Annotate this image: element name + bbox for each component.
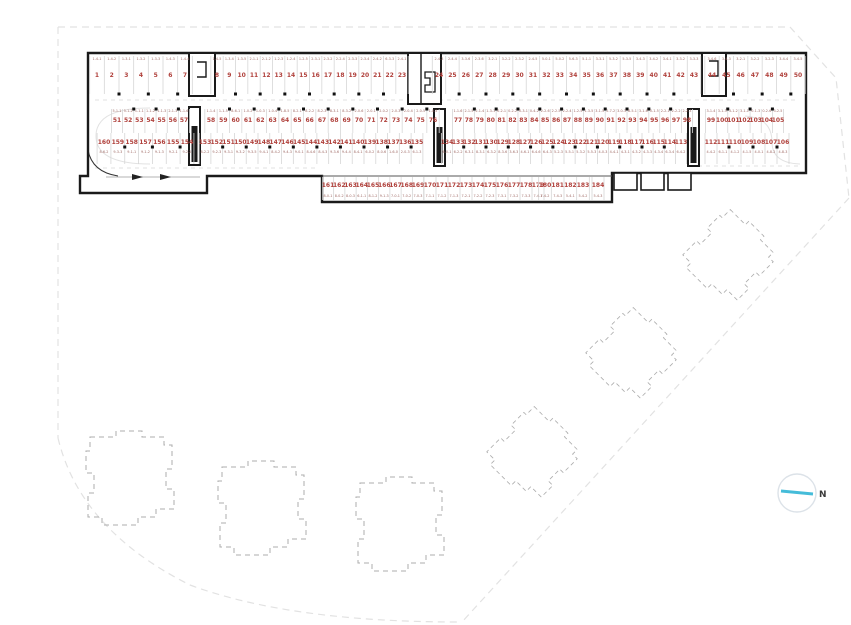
stall-number: 8 bbox=[215, 72, 219, 79]
stall-number: 76 bbox=[429, 117, 437, 124]
dashed-footprint bbox=[580, 302, 686, 408]
unit-code: 1-1-4 bbox=[207, 109, 216, 113]
unit-code: 6-1-1 bbox=[357, 194, 366, 198]
unit-code: 3-4-2 bbox=[649, 57, 658, 61]
unit-code: 8-6-2 bbox=[100, 150, 109, 154]
stall-number: 16 bbox=[311, 72, 319, 79]
unit-code: 2-2-3 bbox=[683, 109, 692, 113]
unit-code: 2-1-3 bbox=[168, 109, 177, 113]
unit-code: 7-0-2 bbox=[402, 194, 411, 198]
stall-number: 94 bbox=[639, 117, 647, 124]
unit-code: 1-0-3 bbox=[256, 109, 265, 113]
stall-number: 96 bbox=[661, 117, 669, 124]
stall-number: 159 bbox=[112, 139, 125, 146]
unit-code: 9-1-3 bbox=[380, 194, 389, 198]
unit-code: 8-2-2 bbox=[305, 109, 314, 113]
unit-code: 2-2-4 bbox=[563, 109, 572, 113]
unit-code: 6-1-3 bbox=[413, 150, 422, 154]
stall-number: 39 bbox=[636, 72, 644, 79]
unit-code: 5-5-3 bbox=[587, 150, 596, 154]
stall-number: 18 bbox=[336, 72, 344, 79]
stall-number: 85 bbox=[541, 117, 549, 124]
unit-code: 6-3-1 bbox=[465, 150, 474, 154]
stall-number: 20 bbox=[361, 72, 369, 79]
unit-code: 3-1-4 bbox=[707, 109, 716, 113]
stall-number: 56 bbox=[169, 117, 177, 124]
unit-code: 2-3-1 bbox=[311, 57, 320, 61]
stall-number: 160 bbox=[98, 139, 111, 146]
stall-number: 17 bbox=[324, 72, 332, 79]
stall-number: 65 bbox=[293, 117, 301, 124]
unit-code: 2-1-5 bbox=[464, 109, 473, 113]
unit-code: 3-4-4 bbox=[779, 57, 788, 61]
unit-code: 3-3-1 bbox=[596, 57, 605, 61]
unit-code: 5-1-1 bbox=[582, 57, 591, 61]
unit-code: 3-3-2 bbox=[676, 57, 685, 61]
unit-code: 1-1-5 bbox=[219, 109, 228, 113]
unit-code: 1-3-5 bbox=[237, 57, 246, 61]
column-dot bbox=[176, 93, 179, 96]
unit-code: 2-4-3 bbox=[435, 57, 444, 61]
stall-number: 23 bbox=[398, 72, 406, 79]
unit-code: 8-2-3 bbox=[318, 109, 327, 113]
unit-code: 4-6-1 bbox=[521, 150, 530, 154]
stall-number: 74 bbox=[404, 117, 412, 124]
unit-code: 8-1-2 bbox=[369, 194, 378, 198]
unit-code: 2-4-2 bbox=[373, 57, 382, 61]
unit-code: 1-1-3 bbox=[157, 109, 166, 113]
column-dot bbox=[283, 93, 286, 96]
stall-number: 48 bbox=[765, 72, 773, 79]
unit-code: 1-4-3 bbox=[166, 57, 175, 61]
column-dot bbox=[565, 93, 568, 96]
stall-number: 137 bbox=[387, 139, 400, 146]
unit-code: 3-1-2 bbox=[729, 109, 738, 113]
stall-number: 177 bbox=[508, 182, 521, 189]
unit-code: 1-4-5 bbox=[213, 57, 222, 61]
stall-number: 61 bbox=[244, 117, 252, 124]
unit-code: 0-3-1 bbox=[519, 109, 528, 113]
unit-code: 2-3-4 bbox=[361, 57, 370, 61]
stall-number: 88 bbox=[574, 117, 582, 124]
stall-number: 32 bbox=[542, 72, 550, 79]
stall-number: 150 bbox=[234, 139, 247, 146]
stall-number: 90 bbox=[596, 117, 604, 124]
stall-number: 79 bbox=[476, 117, 484, 124]
stall-number: 110 bbox=[729, 139, 742, 146]
unit-code: 1-1-6 bbox=[180, 109, 189, 113]
stall-number: 62 bbox=[256, 117, 264, 124]
unit-code: 8-3-1 bbox=[476, 150, 485, 154]
dashed-footprint bbox=[481, 401, 587, 507]
unit-code: 6-3-3 bbox=[385, 57, 394, 61]
stall-number: 170 bbox=[424, 182, 437, 189]
unit-code: 7-0-3 bbox=[414, 194, 423, 198]
unit-code: 5-2-3 bbox=[554, 150, 563, 154]
stall-number: 58 bbox=[207, 117, 215, 124]
unit-code: 1-2-4 bbox=[287, 57, 296, 61]
unit-code: 3-3-6 bbox=[461, 57, 470, 61]
unit-code: 7-3-3 bbox=[522, 194, 531, 198]
stall-number: 19 bbox=[348, 72, 356, 79]
unit-code: 4-4-1 bbox=[610, 150, 619, 154]
stall-number: 64 bbox=[281, 117, 289, 124]
stall-number: 49 bbox=[779, 72, 787, 79]
stall-number: 46 bbox=[736, 72, 744, 79]
unit-code: 9-3-2 bbox=[236, 150, 245, 154]
unit-code: 5-6-3 bbox=[569, 57, 578, 61]
stall-number: 107 bbox=[765, 139, 778, 146]
column-dot bbox=[538, 93, 541, 96]
unit-code: 2-2-2 bbox=[672, 109, 681, 113]
stall-number: 91 bbox=[606, 117, 614, 124]
unit-code: 1-3-1 bbox=[486, 109, 495, 113]
unit-code: 2-0-6 bbox=[355, 109, 364, 113]
stall-number: 36 bbox=[596, 72, 604, 79]
stall-number: 21 bbox=[373, 72, 381, 79]
stall-number: 81 bbox=[497, 117, 505, 124]
stall-number: 30 bbox=[515, 72, 523, 79]
unit-code: 8-6-1 bbox=[231, 109, 240, 113]
site-plan-canvas: 11-4-121-4-231-3-141-3-251-3-361-4-371-4… bbox=[0, 0, 851, 625]
unit-code: 0-2-1 bbox=[497, 109, 506, 113]
unit-code: 9-2-3 bbox=[212, 150, 221, 154]
unit-code: 8-2-2 bbox=[201, 150, 210, 154]
stall-number: 156 bbox=[153, 139, 166, 146]
column-dot bbox=[308, 93, 311, 96]
column-dot bbox=[458, 93, 461, 96]
unit-code: 5-3-2 bbox=[576, 150, 585, 154]
unit-code: 1-8-5 bbox=[281, 109, 290, 113]
unit-code: 5-3-5 bbox=[622, 57, 631, 61]
unit-code: 8-0-6 bbox=[377, 150, 386, 154]
stall-number: 112 bbox=[705, 139, 718, 146]
column-dot bbox=[761, 93, 764, 96]
column-dot bbox=[118, 93, 121, 96]
stall-number: 182 bbox=[564, 182, 577, 189]
unit-code: 7-2-2 bbox=[474, 194, 483, 198]
unit-code: 2-3-3 bbox=[348, 57, 357, 61]
unit-code: 9-4-4 bbox=[342, 150, 351, 154]
stall-number: 174 bbox=[472, 182, 485, 189]
stall-number: 9 bbox=[227, 72, 231, 79]
stall-number: 29 bbox=[502, 72, 510, 79]
unit-code: 6-0-1 bbox=[443, 150, 452, 154]
unit-code: 1-4-1 bbox=[93, 57, 102, 61]
stall-number: 60 bbox=[231, 117, 239, 124]
stall-number: 24 bbox=[435, 72, 443, 79]
unit-code: 7-1-3 bbox=[450, 194, 459, 198]
column-dot bbox=[511, 93, 514, 96]
unit-code: 1-2-5 bbox=[299, 57, 308, 61]
stall-number: 175 bbox=[484, 182, 497, 189]
stall-number: 84 bbox=[530, 117, 538, 124]
stall-number: 83 bbox=[519, 117, 527, 124]
unit-code: 2-2-5 bbox=[552, 109, 561, 113]
stall-number: 178 bbox=[520, 182, 533, 189]
unit-code: 8-3-6 bbox=[498, 150, 507, 154]
unit-code: 8-4-3 bbox=[318, 150, 327, 154]
unit-code: 2-2-6 bbox=[541, 109, 550, 113]
stall-number: 99 bbox=[707, 117, 715, 124]
unit-code: 2-1-1 bbox=[250, 57, 259, 61]
unit-code: 7-1-1 bbox=[426, 194, 435, 198]
unit-code: 2-4-4 bbox=[448, 57, 457, 61]
stall-number: 152 bbox=[211, 139, 224, 146]
stall-number: 52 bbox=[124, 117, 132, 124]
unit-code: 6-3-4 bbox=[665, 150, 674, 154]
column-dot bbox=[672, 93, 675, 96]
stall-number: 87 bbox=[563, 117, 571, 124]
unit-code: 6-4-3 bbox=[543, 150, 552, 154]
unit-code: 5-0-1 bbox=[542, 57, 551, 61]
unit-code: 2-3-6 bbox=[475, 57, 484, 61]
unit-code: 3-1-1 bbox=[740, 109, 749, 113]
unit-code: 7-2-3 bbox=[486, 194, 495, 198]
unit-code: 5-4-3 bbox=[594, 194, 603, 198]
unit-code: 3-4-3 bbox=[636, 57, 645, 61]
stall-number: 5 bbox=[154, 72, 158, 79]
unit-code: 4-3-4 bbox=[654, 150, 663, 154]
unit-code: 6-2-2 bbox=[454, 150, 463, 154]
unit-code: 7-3-2 bbox=[510, 194, 519, 198]
stall-number: 26 bbox=[462, 72, 470, 79]
unit-code: 1-1-2 bbox=[146, 109, 155, 113]
unit-code: 9-3-6 bbox=[330, 150, 339, 154]
dashed-footprint bbox=[356, 477, 444, 571]
unit-code: 9-1-3 bbox=[155, 150, 164, 154]
stall-number: 180 bbox=[539, 182, 552, 189]
column-dot bbox=[234, 93, 237, 96]
stall-number: 66 bbox=[305, 117, 313, 124]
stall-number: 63 bbox=[268, 117, 276, 124]
unit-code: 2-7-2 bbox=[606, 109, 615, 113]
unit-code: 6-1-1 bbox=[719, 150, 728, 154]
unit-code: 2-2-4 bbox=[336, 57, 345, 61]
stall-number: 113 bbox=[675, 139, 688, 146]
unit-code: 5-3-2 bbox=[609, 57, 618, 61]
unit-code: 8-0-1 bbox=[324, 194, 333, 198]
stall-number: 4 bbox=[139, 72, 143, 79]
unit-code: 2-2-1 bbox=[661, 109, 670, 113]
unit-code: 8-0-3 bbox=[346, 194, 355, 198]
unit-code: 3-0-3 bbox=[617, 109, 626, 113]
unit-code: 9-1-1 bbox=[127, 150, 136, 154]
stall-number: 153 bbox=[199, 139, 212, 146]
stall-number: 33 bbox=[556, 72, 564, 79]
unit-code: 6-0-2 bbox=[365, 150, 374, 154]
stall-number: 3 bbox=[124, 72, 128, 79]
unit-code: 7-3-1 bbox=[498, 194, 507, 198]
unit-code: 3-3-3 bbox=[690, 57, 699, 61]
stall-number: 6 bbox=[168, 72, 172, 79]
unit-code: 9-4-3 bbox=[283, 150, 292, 154]
unit-code: 0-4-2 bbox=[530, 109, 539, 113]
unit-code: 3-2-5 bbox=[774, 109, 783, 113]
stall-number: 34 bbox=[569, 72, 577, 79]
unit-code: 2-0-4 bbox=[404, 109, 413, 113]
unit-code: 1-0-4 bbox=[268, 109, 277, 113]
unit-code: 5-1-2 bbox=[124, 109, 133, 113]
stall-number: 80 bbox=[487, 117, 495, 124]
unit-code: 1-4-2 bbox=[107, 57, 116, 61]
north-label: N bbox=[819, 490, 827, 500]
unit-code: 2-4-5 bbox=[528, 57, 537, 61]
unit-code: 0-2-2 bbox=[508, 109, 517, 113]
unit-code: 6-4-2 bbox=[677, 150, 686, 154]
stall-number: 145 bbox=[293, 139, 306, 146]
unit-code: 2-0-3 bbox=[392, 109, 401, 113]
unit-code: 4-3-2 bbox=[632, 150, 641, 154]
unit-code: 4-0-3 bbox=[599, 150, 608, 154]
unit-code: 3-2-3 bbox=[765, 57, 774, 61]
unit-code: 3-6-3 bbox=[509, 150, 518, 154]
stall-number: 7 bbox=[183, 72, 187, 79]
stall-number: 71 bbox=[367, 117, 375, 124]
stall-number: 42 bbox=[676, 72, 684, 79]
unit-code: 7-4-3 bbox=[553, 194, 562, 198]
unit-code: 8-4-1 bbox=[354, 150, 363, 154]
unit-code: 3-2-2 bbox=[751, 57, 760, 61]
site-plan-page: 11-4-121-4-231-3-141-3-251-3-361-4-371-4… bbox=[0, 0, 851, 625]
unit-code: 6-4-6 bbox=[532, 150, 541, 154]
unit-code: 5-4-2 bbox=[579, 194, 588, 198]
unit-code: 2-4-1 bbox=[398, 57, 407, 61]
stall-number: 69 bbox=[342, 117, 350, 124]
stall-number: 95 bbox=[650, 117, 658, 124]
stall-number: 12 bbox=[262, 72, 270, 79]
stall-number: 144 bbox=[305, 139, 318, 146]
stall-number: 31 bbox=[529, 72, 537, 79]
unit-code: 3-1-6 bbox=[639, 109, 648, 113]
column-dot bbox=[259, 93, 262, 96]
unit-code: 8-2-1 bbox=[293, 109, 302, 113]
stall-number: 41 bbox=[663, 72, 671, 79]
stall-number: 10 bbox=[237, 72, 245, 79]
stall-number: 45 bbox=[722, 72, 730, 79]
unit-code: 3-4-6 bbox=[708, 57, 717, 61]
stall-number: 184 bbox=[592, 182, 605, 189]
column-dot bbox=[357, 93, 360, 96]
stall-number: 27 bbox=[475, 72, 483, 79]
stall-number: 47 bbox=[751, 72, 759, 79]
stall-number: 75 bbox=[416, 117, 424, 124]
stall-number: 148 bbox=[258, 139, 271, 146]
stall-number: 51 bbox=[113, 117, 121, 124]
stall-number: 149 bbox=[246, 139, 259, 146]
stall-number: 158 bbox=[125, 139, 138, 146]
stall-number: 78 bbox=[465, 117, 473, 124]
unit-code: 1-3-3 bbox=[151, 57, 160, 61]
stall-number: 97 bbox=[672, 117, 680, 124]
unit-code: 7-1-2 bbox=[438, 194, 447, 198]
stall-number: 172 bbox=[448, 182, 461, 189]
unit-code: 8-3-2 bbox=[342, 109, 351, 113]
stall-number: 57 bbox=[180, 117, 188, 124]
stall-number: 141 bbox=[340, 139, 353, 146]
unit-code: 8-0-2 bbox=[335, 194, 344, 198]
column-dot bbox=[333, 93, 336, 96]
unit-code: 8-4-2 bbox=[271, 150, 280, 154]
column-dot bbox=[732, 93, 735, 96]
unit-code: 7-2-1 bbox=[462, 194, 471, 198]
stall-number: 38 bbox=[623, 72, 631, 79]
north-compass: N bbox=[778, 474, 827, 512]
stall-number: 181 bbox=[551, 182, 564, 189]
unit-code: 4-4-2 bbox=[707, 150, 716, 154]
stall-number: 169 bbox=[412, 182, 425, 189]
stall-number: 28 bbox=[489, 72, 497, 79]
dashed-footprint bbox=[218, 461, 306, 555]
stall-number: 173 bbox=[460, 182, 473, 189]
unit-code: 1-1-1 bbox=[135, 109, 144, 113]
unit-code: 9-2-2 bbox=[183, 150, 192, 154]
unit-code: 1-3-4 bbox=[225, 57, 234, 61]
stall-number: 55 bbox=[157, 117, 165, 124]
stall-number: 11 bbox=[250, 72, 258, 79]
stall-number: 15 bbox=[299, 72, 307, 79]
stall-number: 13 bbox=[274, 72, 282, 79]
unit-code: 9-3-1 bbox=[224, 150, 233, 154]
unit-code: 3-1-5 bbox=[595, 109, 604, 113]
stall-number: 176 bbox=[496, 182, 509, 189]
stall-number: 50 bbox=[794, 72, 802, 79]
stall-number: 105 bbox=[772, 117, 785, 124]
stall-number: 98 bbox=[683, 117, 691, 124]
stall-number: 35 bbox=[582, 72, 590, 79]
column-dot bbox=[619, 93, 622, 96]
unit-code: 3-4-1 bbox=[663, 57, 672, 61]
stall-number: 68 bbox=[330, 117, 338, 124]
unit-code: 3-2-1 bbox=[488, 57, 497, 61]
column-dot bbox=[484, 93, 487, 96]
unit-code: 1-6-0 bbox=[389, 150, 398, 154]
unit-code: 3-2-2 bbox=[502, 57, 511, 61]
stall-number: 73 bbox=[392, 117, 400, 124]
unit-code: 2-0-1 bbox=[367, 109, 376, 113]
stall-number: 25 bbox=[448, 72, 456, 79]
unit-code: 1-0-5 bbox=[429, 109, 438, 113]
unit-code: 4-3-3 bbox=[643, 150, 652, 154]
column-dot bbox=[646, 93, 649, 96]
stall-number: 44 bbox=[708, 72, 716, 79]
unit-code: 0-1-5 bbox=[650, 109, 659, 113]
unit-code: 4-8-3 bbox=[779, 150, 788, 154]
stall-number: 108 bbox=[753, 139, 766, 146]
dashed-footprint bbox=[86, 431, 174, 525]
unit-code: 2-0-3 bbox=[401, 150, 410, 154]
unit-code: 3-1-3 bbox=[718, 109, 727, 113]
unit-code: 2-0-5 bbox=[416, 109, 425, 113]
unit-code: 4-8-2 bbox=[767, 150, 776, 154]
stall-number: 40 bbox=[650, 72, 658, 79]
column-dot bbox=[592, 93, 595, 96]
stall-number: 111 bbox=[717, 139, 730, 146]
unit-code: 1-1-6 bbox=[454, 109, 463, 113]
unit-code: 5-0-2 bbox=[555, 57, 564, 61]
unit-code: 4-1-5 bbox=[743, 150, 752, 154]
unit-code: 9-0-1 bbox=[295, 150, 304, 154]
stall-number: 1 bbox=[95, 72, 99, 79]
unit-code: 1-2-3 bbox=[274, 57, 283, 61]
unit-code: 5-1-1 bbox=[113, 109, 122, 113]
stall-number: 106 bbox=[777, 139, 790, 146]
unit-code: 2-1-2 bbox=[262, 57, 271, 61]
stall-number: 72 bbox=[379, 117, 387, 124]
unit-code: 8-3-1 bbox=[330, 109, 339, 113]
unit-code: 0-2-6 bbox=[762, 109, 771, 113]
unit-code: 9-4-1 bbox=[259, 150, 268, 154]
